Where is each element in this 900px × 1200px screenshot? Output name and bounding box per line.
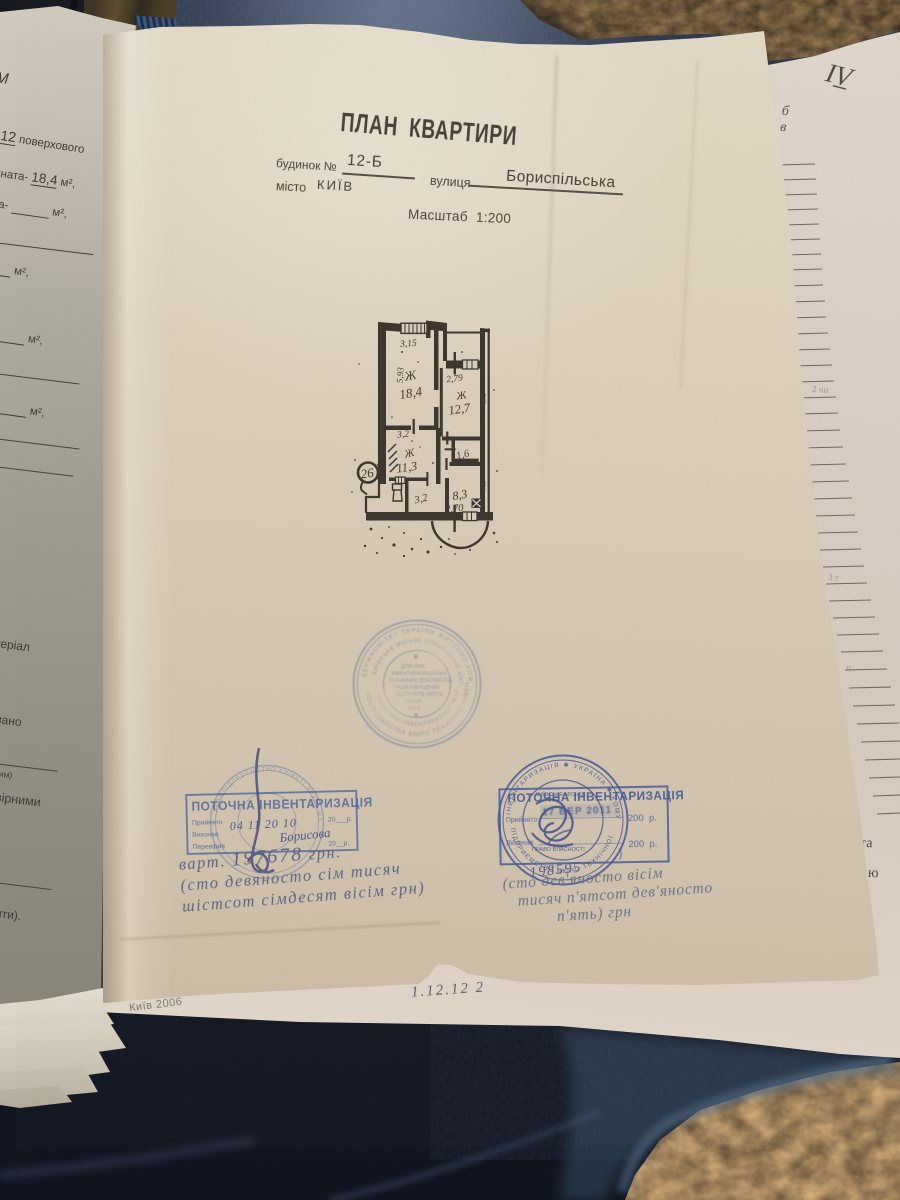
svg-text:Прийнято: Прийнято [192,818,223,827]
svg-text:200 р.: 200 р. [628,813,657,825]
svg-text:ТЕХНІЧНИХ ДОКУМЕНТІВ: ТЕХНІЧНИХ ДОКУМЕНТІВ [388,678,453,684]
svg-text:Прийнято: Прийнято [506,816,538,825]
svg-text:2,65: 2,65 [478,480,488,494]
svg-text:2 чн: 2 чн [812,384,829,395]
svg-text:Перевірив: Перевірив [192,842,225,851]
svg-text:ПОТОЧНА ІНВЕНТАРИЗАЦІЯ: ПОТОЧНА ІНВЕНТАРИЗАЦІЯ [191,795,373,814]
svg-text:8,3: 8,3 [451,487,468,503]
svg-text:ПРАВО ВЛАСНОСТІ: ПРАВО ВЛАСНОСТІ [532,847,585,853]
svg-text:2,79: 2,79 [446,373,464,385]
svg-text:20___р.: 20___р. [328,816,353,824]
svg-text:Виконав: Виконав [192,831,219,839]
svg-text:2,70: 2,70 [445,503,465,516]
svg-text:200 р.: 200 р. [628,839,657,851]
svg-text:18,4: 18,4 [398,383,423,401]
svg-text:4,56: 4,56 [478,393,488,408]
svg-text:12,7: 12,7 [447,400,472,417]
svg-text:п: п [846,662,852,672]
svg-text:3,2: 3,2 [413,492,430,506]
svg-text:11,3: 11,3 [395,459,418,476]
svg-text:3,15: 3,15 [399,339,418,351]
svg-text:ДЛЯ НИХ: ДЛЯ НИХ [401,664,425,670]
svg-text:КИЇВСЬКЕ МІСЬКЕ: КИЇВСЬКЕ МІСЬКЕ [536,791,586,798]
svg-text:26: 26 [360,465,375,482]
svg-text:✱: ✱ [413,653,419,661]
svg-text:3 т: 3 т [828,572,839,583]
svg-text:3,2: 3,2 [396,430,410,441]
